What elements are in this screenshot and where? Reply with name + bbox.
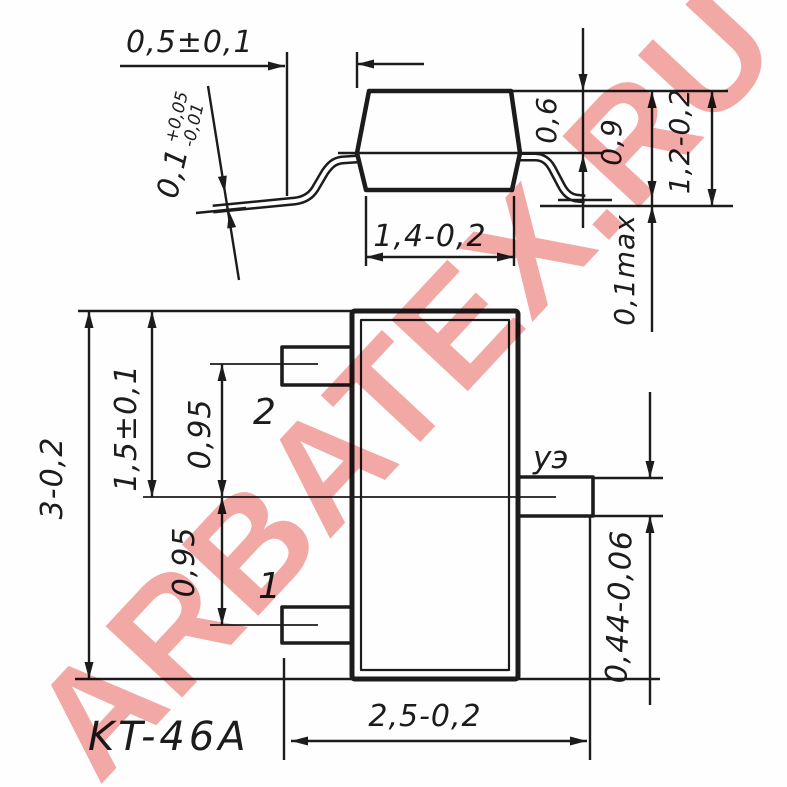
dim-top-to-foot: 0,9: [595, 118, 628, 166]
top-view-lead-2: [282, 347, 356, 385]
top-view-body-outer: [352, 311, 518, 679]
side-view-lead-right: [512, 157, 585, 199]
top-view: 3-0,2 1,5±0,1 0,95 0,95 2,5-0,2 0,44-0,0…: [35, 311, 663, 760]
technical-drawing: 0,5±0,1 0,1 +0,05 -0,01 1,4-0,2 0,6 0,9 …: [0, 0, 787, 787]
dim-top-to-seam: 0,6: [530, 96, 563, 144]
dim-total-height: 1,2-0,2: [663, 88, 696, 194]
dim-body-width: 1,4-0,2: [373, 219, 486, 254]
dim-total-width: 2,5-0,2: [368, 699, 481, 734]
dim-body-length: 3-0,2: [35, 437, 70, 520]
dim-lead3-width: 0,44-0,06: [599, 529, 639, 684]
lead-label-2: 2: [253, 392, 276, 433]
lead-label-1: 1: [258, 566, 281, 607]
dim-pitch-lower: 0,95: [167, 527, 202, 598]
dim-standoff: 0,1max: [608, 214, 641, 326]
side-view: 0,5±0,1 0,1 +0,05 -0,01 1,4-0,2 0,6 0,9 …: [120, 25, 733, 332]
side-view-lead-left: [213, 159, 357, 209]
lead-label-3: уэ: [532, 440, 568, 476]
drawing-sheet: 0,5±0,1 0,1 +0,05 -0,01 1,4-0,2 0,6 0,9 …: [0, 0, 787, 787]
dim-lead-thickness-base: 0,1: [150, 144, 196, 201]
dim-center-offset: 1,5±0,1: [109, 364, 144, 492]
package-name: KT-46A: [88, 714, 250, 760]
dim-lead-foot-width: 0,5±0,1: [126, 25, 254, 60]
dim-lead-thickness: 0,1 +0,05 -0,01: [149, 90, 210, 203]
side-view-body: [357, 91, 520, 190]
dim-pitch-upper: 0,95: [183, 399, 218, 470]
